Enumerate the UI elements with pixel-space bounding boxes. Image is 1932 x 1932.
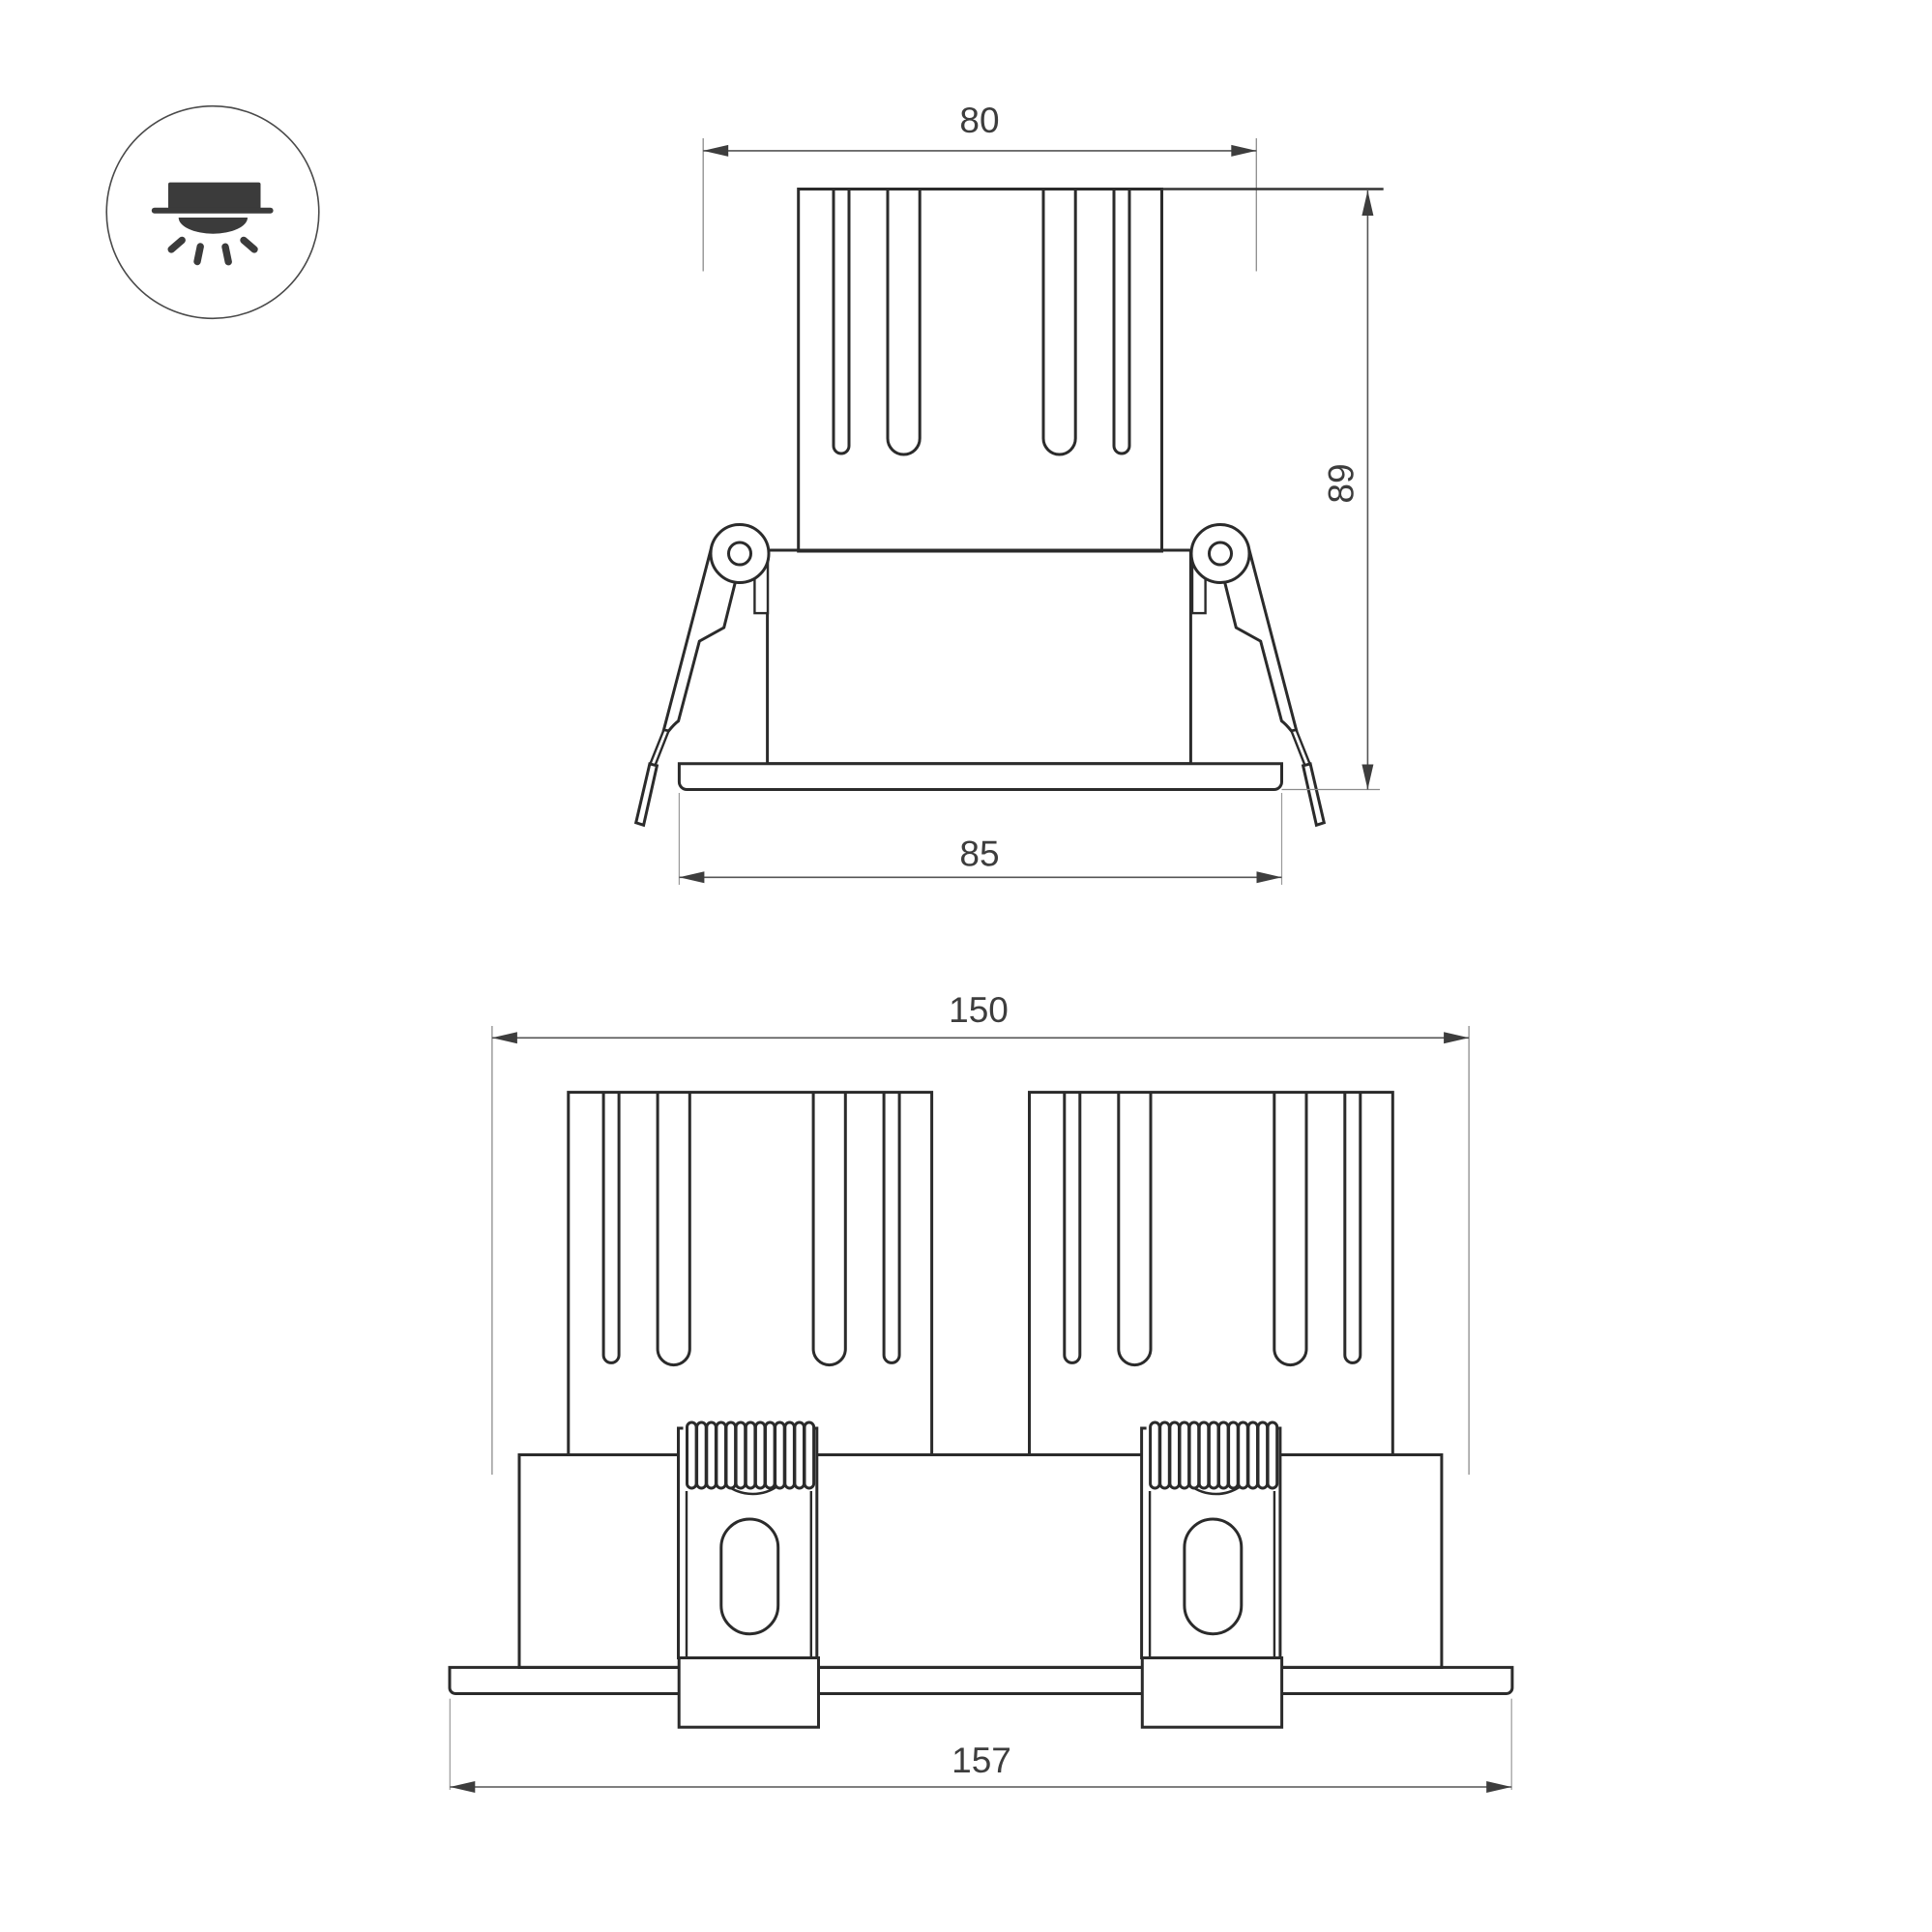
svg-text:85: 85 bbox=[959, 834, 999, 874]
svg-text:157: 157 bbox=[951, 1741, 1011, 1780]
svg-text:80: 80 bbox=[959, 101, 999, 140]
svg-text:89: 89 bbox=[1322, 463, 1361, 503]
svg-text:150: 150 bbox=[949, 990, 1009, 1030]
